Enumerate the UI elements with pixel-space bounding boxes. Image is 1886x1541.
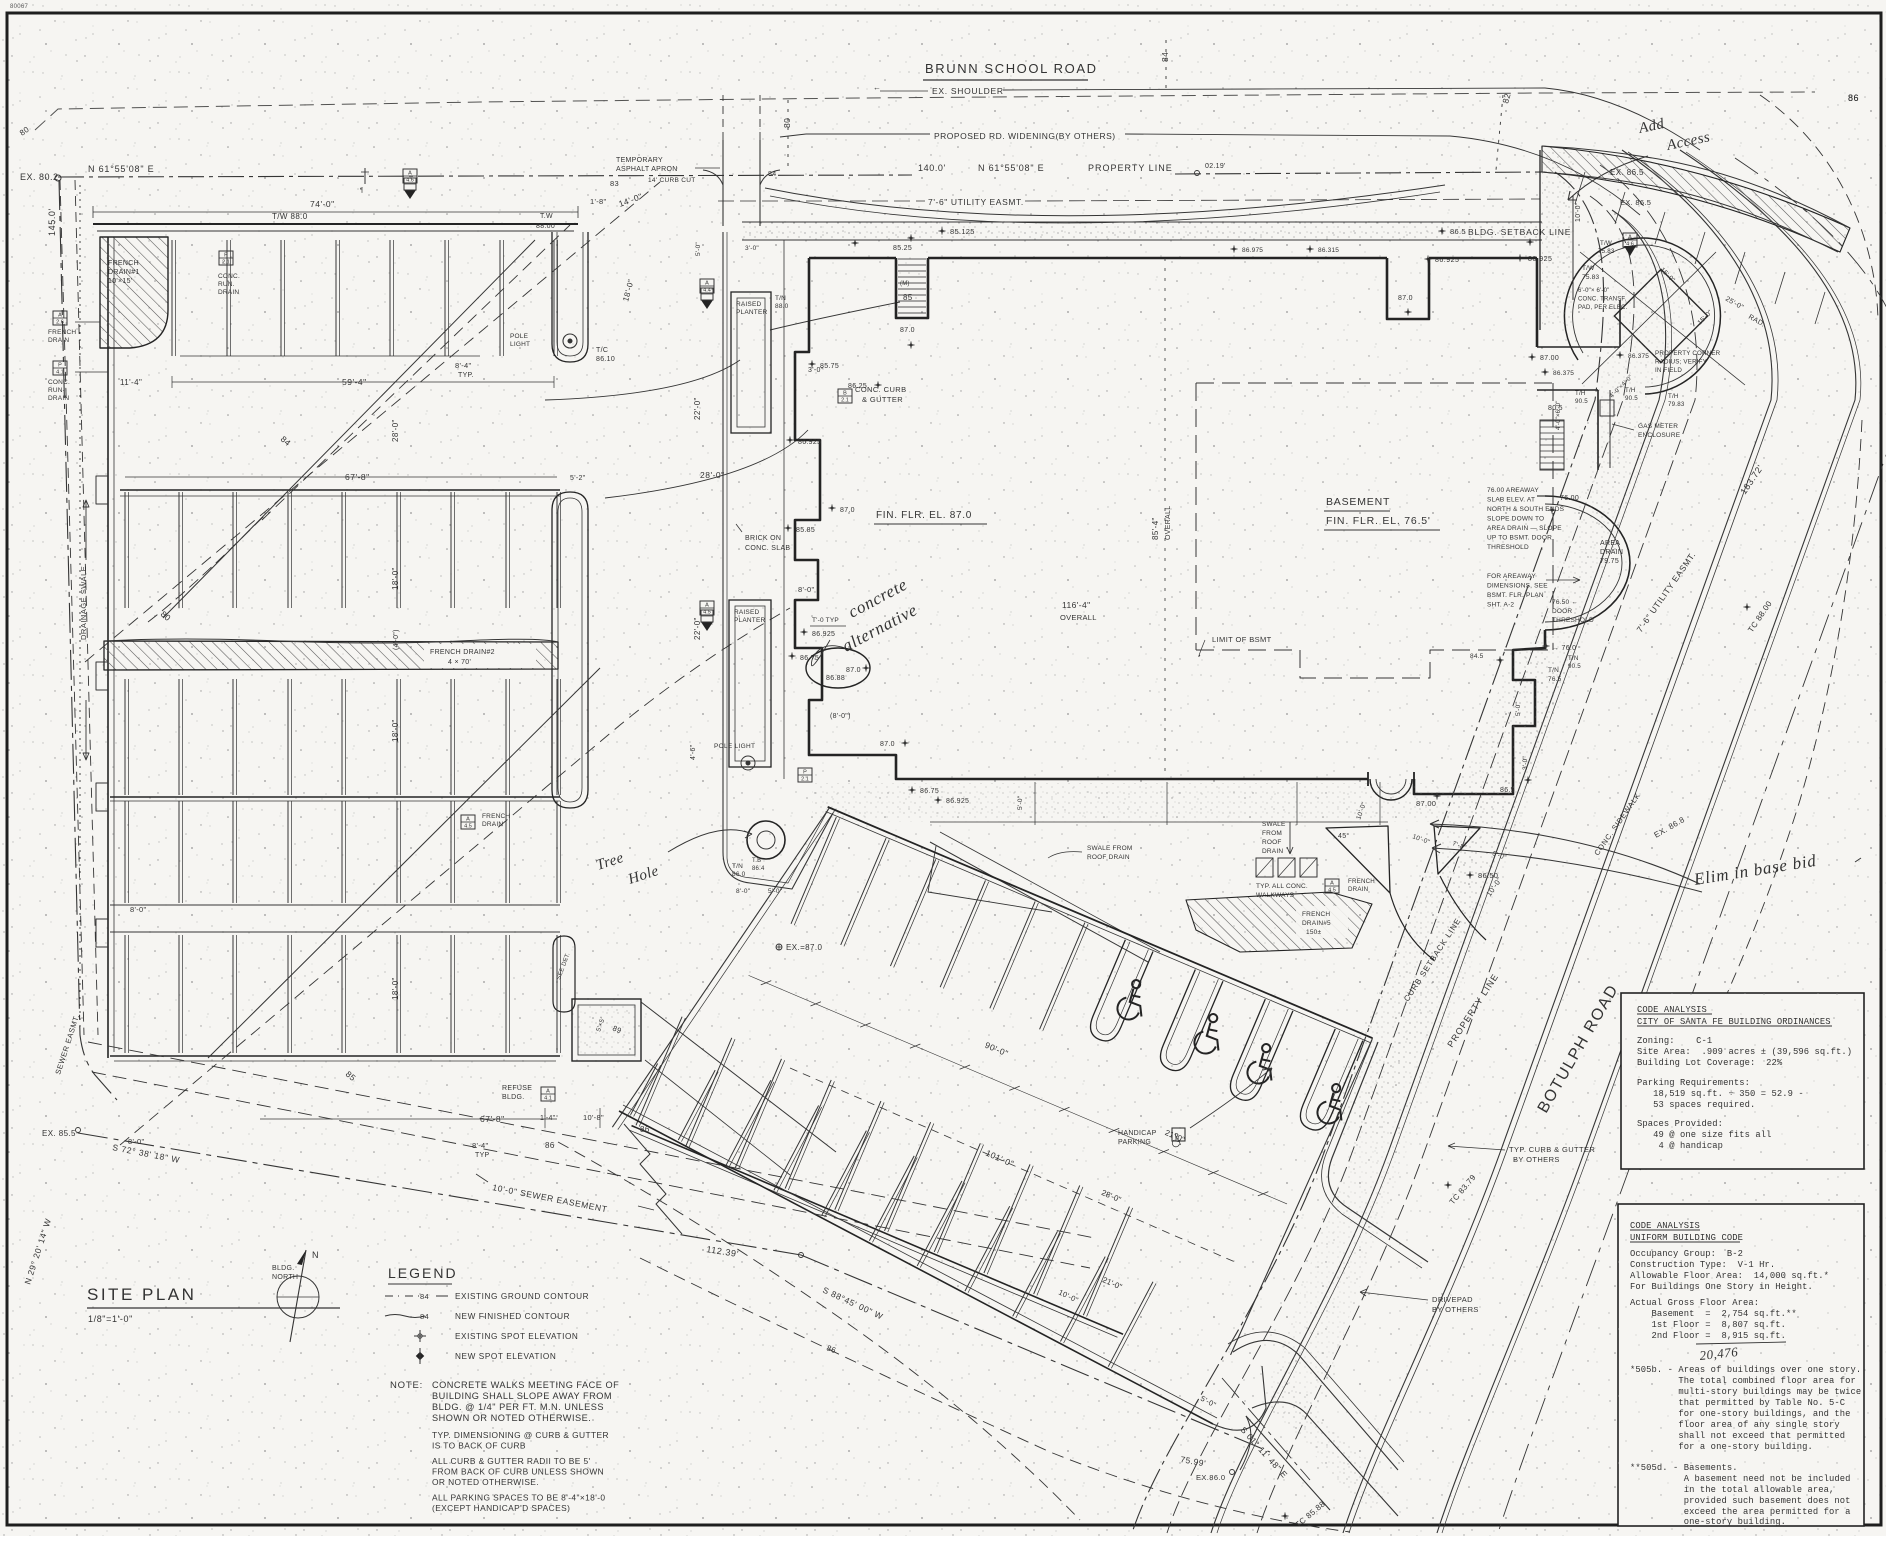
svg-text:TYP. CURB & GUTTER: TYP. CURB & GUTTER: [1509, 1145, 1595, 1154]
svg-text:28'-0": 28'-0": [391, 419, 400, 442]
svg-text:2.1: 2.1: [801, 777, 809, 783]
svg-text:EX. 85.5: EX. 85.5: [42, 1129, 76, 1138]
svg-text:OVERALL: OVERALL: [1165, 506, 1172, 540]
svg-text:OR NOTED OTHERWISE.: OR NOTED OTHERWISE.: [432, 1477, 539, 1487]
svg-text:SHOWN OR NOTED OTHERWISE.: SHOWN OR NOTED OTHERWISE.: [432, 1413, 591, 1423]
svg-text:T/C: T/C: [596, 347, 608, 354]
svg-text:SWALE FROM: SWALE FROM: [1087, 845, 1132, 852]
svg-text:FOR AREAWAY: FOR AREAWAY: [1487, 573, 1536, 580]
svg-text:88.00: 88.00: [536, 223, 555, 230]
svg-text:For Buildings One Story in Hei: For Buildings One Story in Height.: [1630, 1282, 1813, 1292]
svg-text:(M): (M): [900, 281, 910, 287]
svg-text:ASPHALT APRON: ASPHALT APRON: [616, 166, 678, 173]
svg-text:84: 84: [768, 171, 776, 178]
svg-text:87.0: 87.0: [846, 667, 861, 674]
svg-text:85.75: 85.75: [820, 363, 839, 370]
svg-text:multi-story buildings may be t: multi-story buildings may be twice: [1630, 1387, 1861, 1397]
svg-text:NEW FINISHED CONTOUR: NEW FINISHED CONTOUR: [455, 1312, 570, 1321]
svg-text:86.88: 86.88: [826, 675, 845, 682]
svg-text:11'-4": 11'-4": [120, 378, 142, 387]
svg-text:EX.86.0: EX.86.0: [1196, 1473, 1226, 1482]
svg-text:T.W: T.W: [540, 213, 553, 220]
svg-text:DRAIN#5: DRAIN#5: [1302, 920, 1331, 927]
svg-text:86.0: 86.0: [732, 871, 746, 878]
svg-text:DRIVEPAD: DRIVEPAD: [1432, 1295, 1473, 1304]
svg-text:79.83: 79.83: [1668, 401, 1685, 408]
svg-text:84: 84: [420, 1312, 429, 1321]
svg-text:PLANTER: PLANTER: [734, 617, 765, 624]
svg-text:Construction Type: V-1 Hr.: Construction Type: V-1 Hr.: [1630, 1260, 1775, 1270]
svg-text:T/N: T/N: [775, 295, 786, 302]
svg-text:A: A: [58, 313, 62, 319]
svg-text:T/H: T/H: [1575, 390, 1586, 397]
svg-text:RAISED: RAISED: [734, 609, 760, 616]
svg-text:NEW SPOT ELEVATION: NEW SPOT ELEVATION: [455, 1352, 556, 1361]
svg-text:18'-0": 18'-0": [391, 977, 400, 1000]
svg-text:PLANTER: PLANTER: [736, 309, 767, 316]
svg-text:TEMPORARY: TEMPORARY: [616, 157, 663, 164]
svg-text:Spaces Provided:: Spaces Provided:: [1637, 1119, 1723, 1129]
svg-text:87.0: 87.0: [1398, 295, 1413, 302]
svg-text:(EXCEPT HANDICAP'D SPACES): (EXCEPT HANDICAP'D SPACES): [432, 1503, 570, 1513]
svg-text:A: A: [705, 603, 709, 609]
svg-text:2.1: 2.1: [841, 398, 849, 404]
svg-text:86.375: 86.375: [1553, 370, 1574, 377]
svg-text:T/W: T/W: [1600, 240, 1612, 247]
svg-text:86.50: 86.50: [1478, 871, 1498, 880]
svg-text:OVERALL: OVERALL: [1060, 613, 1097, 622]
svg-text:A: A: [408, 171, 412, 177]
svg-text:1'-8": 1'-8": [590, 197, 606, 206]
svg-text:87.0: 87.0: [900, 327, 915, 334]
svg-text:BLDG.: BLDG.: [502, 1094, 525, 1101]
svg-text:LIMIT OF BSMT: LIMIT OF BSMT: [1212, 635, 1272, 644]
svg-text:Actual Gross Floor Area:: Actual Gross Floor Area:: [1630, 1298, 1759, 1308]
svg-text:CODE ANALYSIS: CODE ANALYSIS: [1630, 1221, 1700, 1231]
svg-text:22'-0": 22'-0": [693, 617, 702, 640]
svg-text:PROPERTY LINE: PROPERTY LINE: [1088, 163, 1173, 173]
svg-text:BRICK ON: BRICK ON: [745, 535, 781, 542]
svg-text:HANDICAP: HANDICAP: [1118, 1130, 1157, 1137]
svg-text:REFUSE: REFUSE: [502, 1085, 532, 1092]
svg-text:10'×15': 10'×15': [108, 278, 132, 285]
svg-text:1st Floor = 8,807 sq.ft.: 1st Floor = 8,807 sq.ft.: [1630, 1320, 1786, 1330]
svg-text:86.5: 86.5: [1450, 227, 1466, 236]
svg-text:80067: 80067: [10, 4, 29, 10]
svg-text:floor area of any single story: floor area of any single story: [1630, 1420, 1840, 1430]
svg-text:LEGEND: LEGEND: [388, 1265, 458, 1281]
svg-text:BLDG.: BLDG.: [272, 1265, 295, 1272]
svg-text:FRENCH: FRENCH: [1302, 911, 1330, 918]
svg-text:DRAIN: DRAIN: [218, 289, 239, 296]
svg-text:8'-4": 8'-4": [472, 1141, 488, 1150]
svg-text:4 × 70': 4 × 70': [448, 659, 471, 666]
svg-text:ALL PARKING SPACES TO BE 8'-4": ALL PARKING SPACES TO BE 8'-4"×18'-0: [432, 1493, 605, 1503]
svg-text:P: P: [58, 363, 62, 369]
svg-text:18'-0": 18'-0": [391, 719, 400, 742]
svg-text:A: A: [1628, 235, 1632, 241]
svg-text:A basement need not be include: A basement need not be included: [1630, 1474, 1851, 1484]
svg-text:SITE PLAN: SITE PLAN: [87, 1285, 196, 1304]
svg-text:PARKING: PARKING: [1118, 1139, 1151, 1146]
svg-text:8'-4": 8'-4": [455, 361, 471, 370]
svg-text:86.25: 86.25: [848, 383, 867, 390]
svg-text:84: 84: [420, 1292, 429, 1301]
svg-text:SLOPE DOWN TO: SLOPE DOWN TO: [1487, 516, 1544, 523]
svg-text:85.125: 85.125: [950, 227, 975, 236]
svg-text:116'-4": 116'-4": [1062, 600, 1091, 610]
svg-text:86: 86: [545, 1141, 555, 1150]
svg-text:140.0': 140.0': [918, 163, 946, 173]
svg-text:CONC. SLAB: CONC. SLAB: [745, 545, 790, 552]
svg-text:RAISED: RAISED: [736, 301, 762, 308]
svg-text:TYP. DIMENSIONING @ CURB & GUT: TYP. DIMENSIONING @ CURB & GUTTER: [432, 1430, 609, 1440]
svg-text:THRESHOLD: THRESHOLD: [1487, 544, 1529, 551]
svg-text:UP TO BSMT. DOOR: UP TO BSMT. DOOR: [1487, 535, 1552, 542]
svg-text:2nd Floor = 8,915 sq.ft.: 2nd Floor = 8,915 sq.ft.: [1630, 1331, 1786, 1341]
svg-text:RUN-: RUN-: [48, 387, 65, 394]
svg-text:ROOF DRAIN: ROOF DRAIN: [1087, 854, 1130, 861]
svg-text:CONCRETE WALKS MEETING FACE OF: CONCRETE WALKS MEETING FACE OF: [432, 1380, 619, 1390]
svg-text:DRAIN: DRAIN: [48, 337, 69, 344]
svg-text:UNIFORM BUILDING CODE: UNIFORM BUILDING CODE: [1630, 1233, 1743, 1243]
svg-text:22'-0": 22'-0": [693, 397, 702, 420]
svg-text:5'-2": 5'-2": [570, 475, 586, 482]
svg-text:86.975: 86.975: [1242, 247, 1263, 254]
svg-text:74'-0": 74'-0": [310, 199, 335, 209]
svg-text:←: ←: [873, 83, 881, 92]
svg-text:*505b. - Areas of buildings ov: *505b. - Areas of buildings over one sto…: [1630, 1365, 1861, 1375]
svg-text:B: B: [843, 391, 847, 397]
svg-text:4.5: 4.5: [703, 610, 711, 616]
svg-text:TYP.: TYP.: [458, 372, 474, 379]
svg-text:18'-0": 18'-0": [391, 567, 400, 590]
svg-text:for one-story buildings, and t: for one-story buildings, and the: [1630, 1409, 1851, 1419]
svg-text:8'-0": 8'-0": [130, 905, 146, 914]
svg-text:3'-0": 3'-0": [745, 245, 759, 252]
svg-text:86.925: 86.925: [798, 439, 821, 446]
svg-text:BRUNN SCHOOL ROAD: BRUNN SCHOOL ROAD: [925, 61, 1098, 76]
svg-text:ALL CURB & GUTTER RADII TO BE: ALL CURB & GUTTER RADII TO BE 5': [432, 1456, 591, 1466]
svg-text:10'-8": 10'-8": [583, 1113, 604, 1122]
svg-text:4.1: 4.1: [56, 370, 64, 376]
svg-text:BSMT. FLR. PLAN: BSMT. FLR. PLAN: [1487, 592, 1544, 599]
svg-text:4.1: 4.1: [544, 1096, 552, 1102]
svg-text:85.25: 85.25: [893, 245, 912, 252]
svg-text:T/N: T/N: [732, 863, 743, 870]
svg-text:DRAIN: DRAIN: [482, 821, 503, 828]
svg-text:87.00: 87.00: [1540, 355, 1559, 362]
svg-text:02.19': 02.19': [1205, 163, 1226, 170]
svg-text:86: 86: [640, 1125, 650, 1134]
svg-text:T/H: T/H: [1668, 393, 1679, 400]
svg-text:AREA DRAIN — SLOPE: AREA DRAIN — SLOPE: [1487, 525, 1562, 532]
svg-text:T.B: T.B: [752, 858, 761, 864]
svg-text:76.00: 76.00: [1560, 495, 1579, 502]
svg-text:FIN. FLR. EL. 87.0: FIN. FLR. EL. 87.0: [876, 510, 972, 521]
svg-text:SHT. A-2: SHT. A-2: [1487, 602, 1514, 609]
svg-text:80.5: 80.5: [1548, 405, 1563, 412]
svg-text:LIGHT: LIGHT: [510, 341, 530, 348]
svg-text:ROOF: ROOF: [1262, 839, 1282, 846]
svg-text:DRAIN: DRAIN: [1262, 848, 1283, 855]
svg-text:88.0: 88.0: [775, 303, 789, 310]
svg-text:EXISTING SPOT ELEVATION: EXISTING SPOT ELEVATION: [455, 1332, 578, 1341]
svg-text:Basement = 2,754 sq.ft.**: Basement = 2,754 sq.ft.**: [1630, 1309, 1797, 1319]
svg-text:8'-0": 8'-0": [736, 888, 751, 895]
svg-text:53 spaces required.: 53 spaces required.: [1637, 1100, 1755, 1110]
svg-text:POLE: POLE: [510, 333, 529, 340]
svg-text:EX. 86.5: EX. 86.5: [1620, 198, 1651, 207]
svg-text:RUN.: RUN.: [218, 281, 235, 288]
svg-text:DRAIN#1: DRAIN#1: [108, 269, 140, 276]
svg-text:N: N: [312, 1250, 319, 1260]
svg-text:The total combined floor area: The total combined floor area for: [1630, 1376, 1856, 1386]
svg-text:1/8"=1'-0": 1/8"=1'-0": [88, 1314, 133, 1324]
svg-text:86.315: 86.315: [1318, 247, 1339, 254]
svg-text:84: 84: [1160, 52, 1170, 62]
svg-text:FROM BACK OF CURB UNLESS SHOWN: FROM BACK OF CURB UNLESS SHOWN: [432, 1467, 604, 1477]
svg-text:FROM: FROM: [1262, 830, 1282, 837]
svg-text:86: 86: [1848, 93, 1859, 103]
svg-text:45°: 45°: [1338, 832, 1350, 840]
svg-text:P: P: [224, 253, 228, 259]
svg-text:75.83: 75.83: [1582, 274, 1599, 281]
svg-text:EX.=87.0: EX.=87.0: [786, 943, 822, 952]
svg-text:Site Area: .909 acres ± (39,5: Site Area: .909 acres ± (39,596 sq.ft.): [1637, 1047, 1852, 1057]
svg-text:Occupancy Group: B-2: Occupancy Group: B-2: [1630, 1249, 1743, 1259]
svg-text:4'-6": 4'-6": [690, 744, 697, 760]
svg-text:T'-0 TYP: T'-0 TYP: [812, 617, 839, 624]
svg-text:¶: ¶: [360, 188, 363, 194]
svg-text:TYP: TYP: [475, 1152, 490, 1159]
svg-text:P: P: [803, 770, 807, 776]
svg-text:8'-0": 8'-0": [798, 585, 814, 594]
svg-text:CONC.: CONC.: [48, 379, 70, 386]
svg-text:CONC.: CONC.: [218, 273, 240, 280]
svg-text:EX. 80.2: EX. 80.2: [20, 172, 59, 182]
svg-text:DIMENSIONS, SEE: DIMENSIONS, SEE: [1487, 583, 1548, 590]
svg-text:EXISTING GROUND CONTOUR: EXISTING GROUND CONTOUR: [455, 1292, 589, 1301]
svg-text:provided such basement does no: provided such basement does not: [1630, 1496, 1851, 1506]
svg-text:10'-0": 10'-0": [1575, 202, 1582, 222]
svg-text:84.5: 84.5: [1470, 653, 1484, 660]
svg-text:4.6: 4.6: [406, 178, 414, 184]
svg-text:POLE LIGHT: POLE LIGHT: [714, 743, 755, 750]
svg-text:shall not exceed that permitte: shall not exceed that permitted: [1630, 1431, 1845, 1441]
svg-text:EX. SHOULDER: EX. SHOULDER: [932, 86, 1004, 96]
svg-text:1'-4": 1'-4": [540, 1115, 556, 1122]
svg-text:BASEMENT: BASEMENT: [1326, 496, 1390, 508]
svg-text:in the total allowable area,: in the total allowable area,: [1630, 1485, 1834, 1495]
svg-text:BUILDING SHALL SLOPE AWAY FROM: BUILDING SHALL SLOPE AWAY FROM: [432, 1391, 612, 1401]
svg-text:5'-0": 5'-0": [695, 242, 702, 256]
svg-text:TYP. ALL CONC.: TYP. ALL CONC.: [1256, 883, 1308, 890]
svg-text:80: 80: [782, 118, 792, 128]
svg-text:49 @ one size fits all: 49 @ one size fits all: [1637, 1130, 1771, 1140]
svg-text:4.5: 4.5: [464, 824, 472, 830]
svg-text:T/W 88.0: T/W 88.0: [272, 212, 308, 221]
svg-text:FRENCH: FRENCH: [108, 260, 139, 267]
svg-text:85'-4": 85'-4": [1151, 517, 1160, 540]
svg-text:A: A: [466, 817, 470, 823]
svg-text:CITY OF SANTA FE BUILDING ORDI: CITY OF SANTA FE BUILDING ORDINANCES: [1637, 1017, 1831, 1027]
svg-text:& GUTTER: & GUTTER: [862, 395, 903, 404]
svg-text:87.0: 87.0: [880, 741, 895, 748]
svg-text:BY OTHERS: BY OTHERS: [1513, 1155, 1560, 1164]
svg-text:4 @ handicap: 4 @ handicap: [1637, 1141, 1723, 1151]
svg-text:**505d. - Basements.: **505d. - Basements.: [1630, 1463, 1738, 1473]
svg-text:Building Lot Coverage: 22%: Building Lot Coverage: 22%: [1637, 1058, 1783, 1068]
svg-text:18,519 sq.ft. ÷ 350 = 52.9 -: 18,519 sq.ft. ÷ 350 = 52.9 -: [1637, 1089, 1804, 1099]
svg-text:N 61°55'08" E: N 61°55'08" E: [978, 163, 1044, 173]
svg-text:83: 83: [610, 179, 619, 188]
svg-text:Parking Requirements:: Parking Requirements:: [1637, 1078, 1750, 1088]
svg-text:5'-0": 5'-0": [1017, 795, 1024, 810]
svg-text:145.0': 145.0': [47, 208, 57, 236]
svg-text:4.4: 4.4: [703, 288, 711, 294]
svg-text:14' CURB CUT: 14' CURB CUT: [648, 177, 695, 184]
svg-text:one-story building.: one-story building.: [1630, 1517, 1786, 1527]
svg-text:Allowable Floor Area: 14,000: Allowable Floor Area: 14,000 sq.ft.*: [1630, 1271, 1829, 1281]
svg-text:that permitted by Table No. 5-: that permitted by Table No. 5-C: [1630, 1398, 1845, 1408]
svg-text:86.4: 86.4: [752, 866, 765, 872]
svg-text:FIN. FLR. EL. 76.5': FIN. FLR. EL. 76.5': [1326, 515, 1431, 527]
svg-text:BLDG. @ 1/4" PER FT. M.N. UNLE: BLDG. @ 1/4" PER FT. M.N. UNLESS: [432, 1402, 604, 1412]
svg-text:2.1: 2.1: [222, 260, 230, 266]
svg-text:FRENCH: FRENCH: [1348, 878, 1375, 885]
svg-text:A: A: [1330, 881, 1334, 887]
svg-text:6'-0"× 6'-0": 6'-0"× 6'-0": [1578, 288, 1609, 294]
svg-text:exceed the area permitted for: exceed the area permitted for a: [1630, 1507, 1851, 1517]
svg-text:PROPOSED RD. WIDENING(BY OTHER: PROPOSED RD. WIDENING(BY OTHERS): [934, 131, 1116, 141]
svg-text:86.10: 86.10: [596, 356, 615, 363]
svg-text:85.85: 85.85: [796, 527, 815, 534]
svg-text:7'-6" UTILITY EASMT.: 7'-6" UTILITY EASMT.: [928, 197, 1024, 207]
svg-text:NOTE:: NOTE:: [390, 1380, 423, 1391]
svg-text:CODE ANALYSIS: CODE ANALYSIS: [1637, 1005, 1707, 1015]
svg-text:(8'-0"): (8'-0"): [830, 713, 851, 720]
svg-text:150±: 150±: [1306, 929, 1321, 936]
svg-text:SLAB ELEV. AT: SLAB ELEV. AT: [1487, 497, 1535, 504]
svg-text:for a one-story building.: for a one-story building.: [1630, 1442, 1813, 1452]
svg-text:Zoning: C-1: Zoning: C-1: [1637, 1036, 1712, 1046]
svg-text:T/W: T/W: [1582, 265, 1595, 272]
svg-text:86.925: 86.925: [812, 631, 835, 638]
svg-text:76.00 AREAWAY: 76.00 AREAWAY: [1487, 487, 1539, 494]
svg-text:BY OTHERS: BY OTHERS: [1432, 1305, 1479, 1314]
svg-text:90.5: 90.5: [1575, 398, 1588, 405]
svg-text:A: A: [546, 1089, 550, 1095]
svg-text:FRENCH DRAIN#2: FRENCH DRAIN#2: [430, 649, 495, 656]
svg-text:(4'-0"): (4'-0"): [393, 629, 400, 650]
svg-text:DRAIN: DRAIN: [1348, 886, 1368, 893]
svg-text:A: A: [705, 281, 709, 287]
svg-text:SWALE: SWALE: [1262, 821, 1286, 828]
svg-text:N 61°55'08" E: N 61°55'08" E: [88, 164, 154, 174]
svg-text:87.0: 87.0: [840, 507, 855, 514]
svg-text:IS TO BACK OF CURB: IS TO BACK OF CURB: [432, 1441, 526, 1451]
